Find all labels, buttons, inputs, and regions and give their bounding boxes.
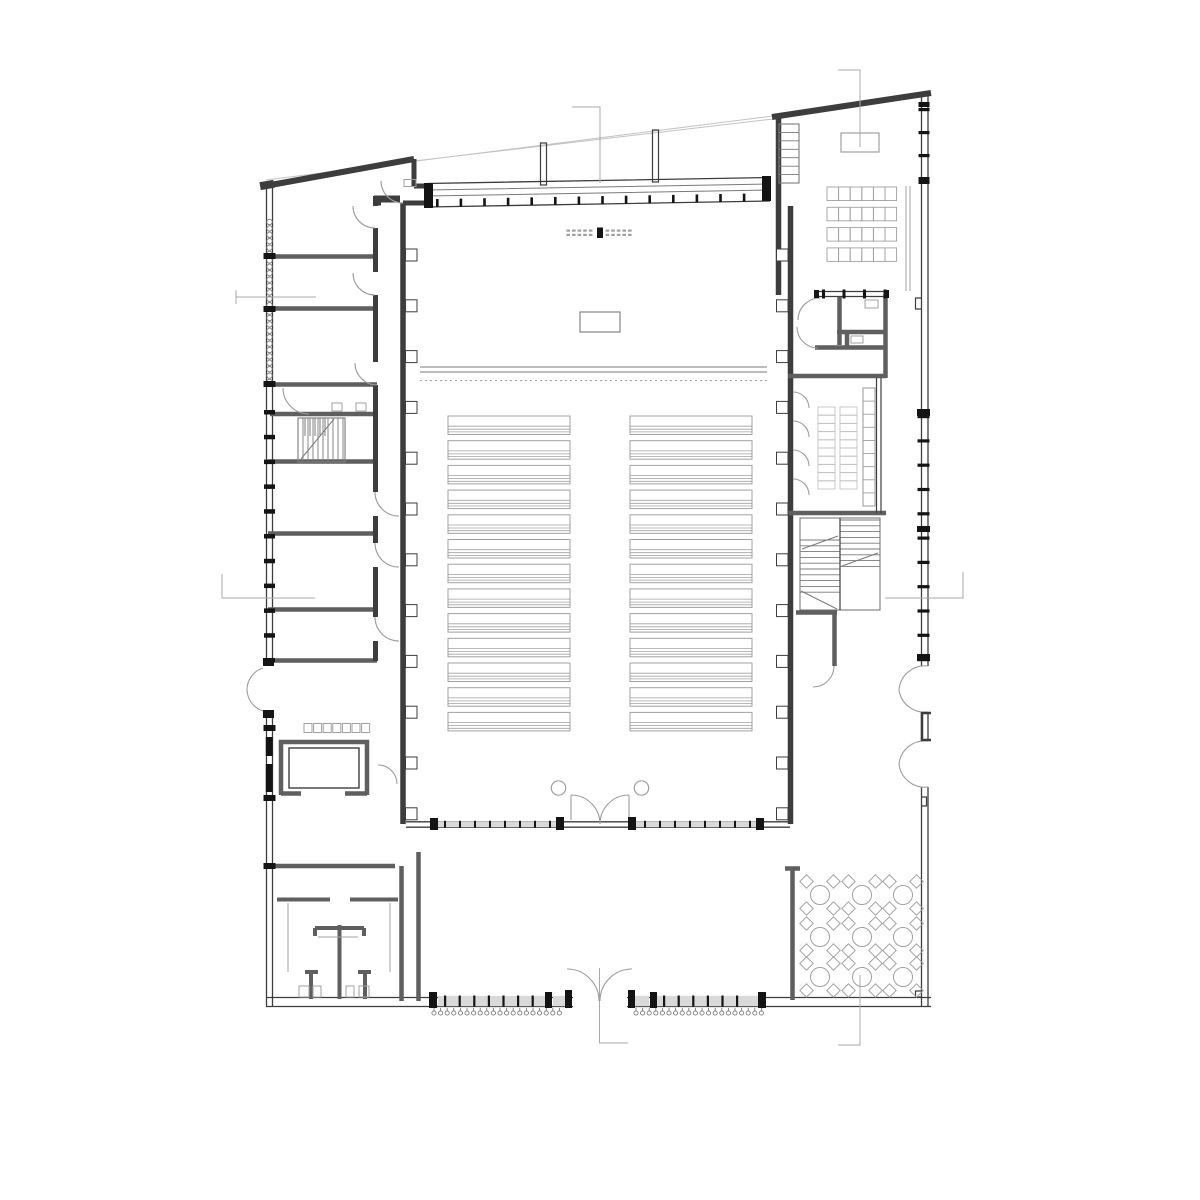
right-door-center-pier	[922, 713, 931, 740]
right-door-gap-1	[916, 666, 930, 713]
floor-plan-canvas	[0, 0, 1200, 1200]
left-wing-door-arcs	[283, 206, 399, 641]
choir-shelf-stack-1	[818, 407, 835, 489]
coat-hooks	[304, 724, 370, 733]
top-left-sloped-wall	[265, 159, 414, 186]
right-outer-wall	[922, 94, 929, 1007]
column-right	[634, 781, 648, 795]
cafe-tables	[800, 875, 923, 997]
left-wing-room-dividers	[268, 257, 377, 661]
classroom-door-arc	[798, 298, 820, 320]
bottom-window-band-3	[635, 996, 649, 1006]
section-marker-top-center	[572, 107, 600, 183]
column-left	[551, 781, 565, 795]
left-door-gap	[262, 664, 275, 712]
radiators-right	[634, 1008, 764, 1015]
floor-plan-svg	[0, 0, 1200, 1200]
toilet-fixtures	[299, 986, 369, 997]
east-wall-pilasters	[777, 249, 789, 820]
hall-top-window-band	[427, 178, 770, 208]
section-marker-bottom-right	[838, 975, 860, 1045]
east-wall-panel-arcs	[793, 392, 809, 495]
roof-pier-1	[541, 143, 547, 185]
pew-block-right	[630, 416, 752, 731]
left-wall-scallops	[267, 219, 272, 384]
right-wall-notch-upper	[916, 298, 922, 309]
pew-block-left	[448, 416, 570, 731]
choir-wall-shelf	[863, 388, 875, 506]
classroom-shelf-ladder	[779, 124, 799, 183]
altar-table	[580, 312, 620, 332]
right-wall-notch-lower	[922, 797, 927, 806]
section-marker-right	[885, 572, 963, 598]
roof-pier-2	[653, 130, 659, 182]
bottom-window-band-1	[438, 996, 545, 1006]
hall-south-wall	[406, 821, 790, 827]
chancel-step-lines	[420, 367, 767, 372]
bottom-window-band-2	[553, 996, 565, 1006]
lectern-mark	[597, 228, 603, 239]
west-wall-pilasters	[406, 249, 418, 820]
left-entrance-door-arcs	[247, 668, 263, 711]
classroom-south-band	[818, 292, 888, 297]
auditorium	[373, 117, 809, 827]
section-marker-left-upper	[236, 290, 316, 304]
top-right-sloped-wall	[772, 93, 931, 117]
generated-furniture	[263, 102, 930, 1015]
cloak-window-bands	[266, 737, 273, 792]
classroom-inner-wall	[906, 186, 910, 291]
cloakroom	[281, 742, 397, 795]
cafeteria	[785, 868, 800, 1000]
classroom-tables	[827, 187, 897, 261]
hall-top-band-ticks	[436, 194, 745, 207]
radiators-left	[432, 1008, 562, 1015]
right-wall-notch-bottom	[916, 991, 922, 997]
left-wall-sill-ticks	[264, 410, 275, 663]
hall-inner-door-arcs	[571, 795, 629, 824]
right-door-gap-2	[916, 741, 930, 787]
stair-left-treads	[303, 418, 343, 462]
choir-shelf-stack-2	[840, 407, 857, 489]
room-under-stair	[796, 613, 837, 688]
restrooms	[271, 852, 419, 1001]
section-markers	[222, 70, 963, 1045]
